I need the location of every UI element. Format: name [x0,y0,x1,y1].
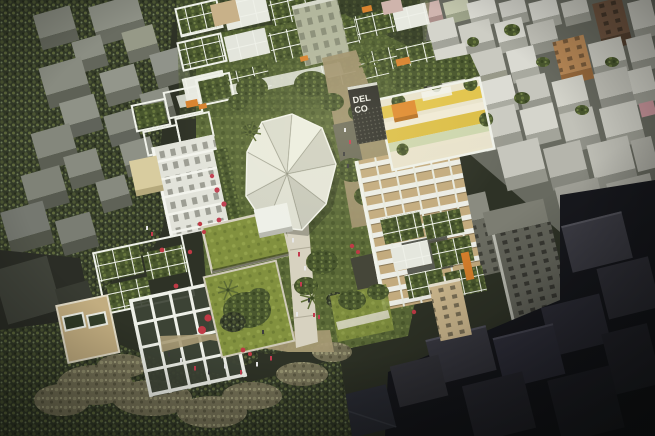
vignette [0,0,655,436]
architectural-rendering: Aerial 3D architectural rendering of a g… [0,0,655,436]
rendering-stage: Aerial 3D architectural rendering of a g… [0,0,655,436]
